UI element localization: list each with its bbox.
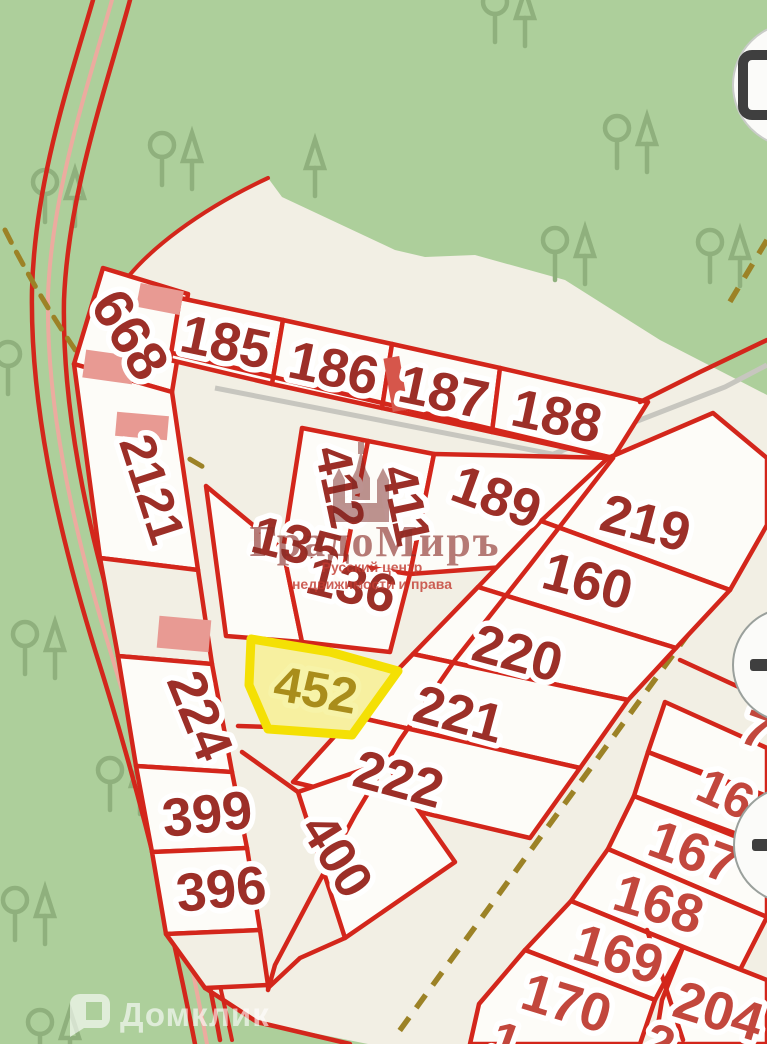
plot-label-396: 396 (173, 855, 269, 924)
minus-icon (752, 839, 767, 851)
map-canvas[interactable]: 6681851861871882121412411189219135136160… (0, 0, 767, 1044)
plot-label-399: 399 (159, 780, 255, 849)
agency-watermark-sub2: недвижимости и права (292, 576, 452, 592)
agency-watermark-sub1: Русский центр (322, 559, 423, 575)
plus-icon (750, 659, 767, 671)
provider-name: Домклик (120, 996, 270, 1033)
map-viewport[interactable]: 6681851861871882121412411189219135136160… (0, 0, 767, 1044)
